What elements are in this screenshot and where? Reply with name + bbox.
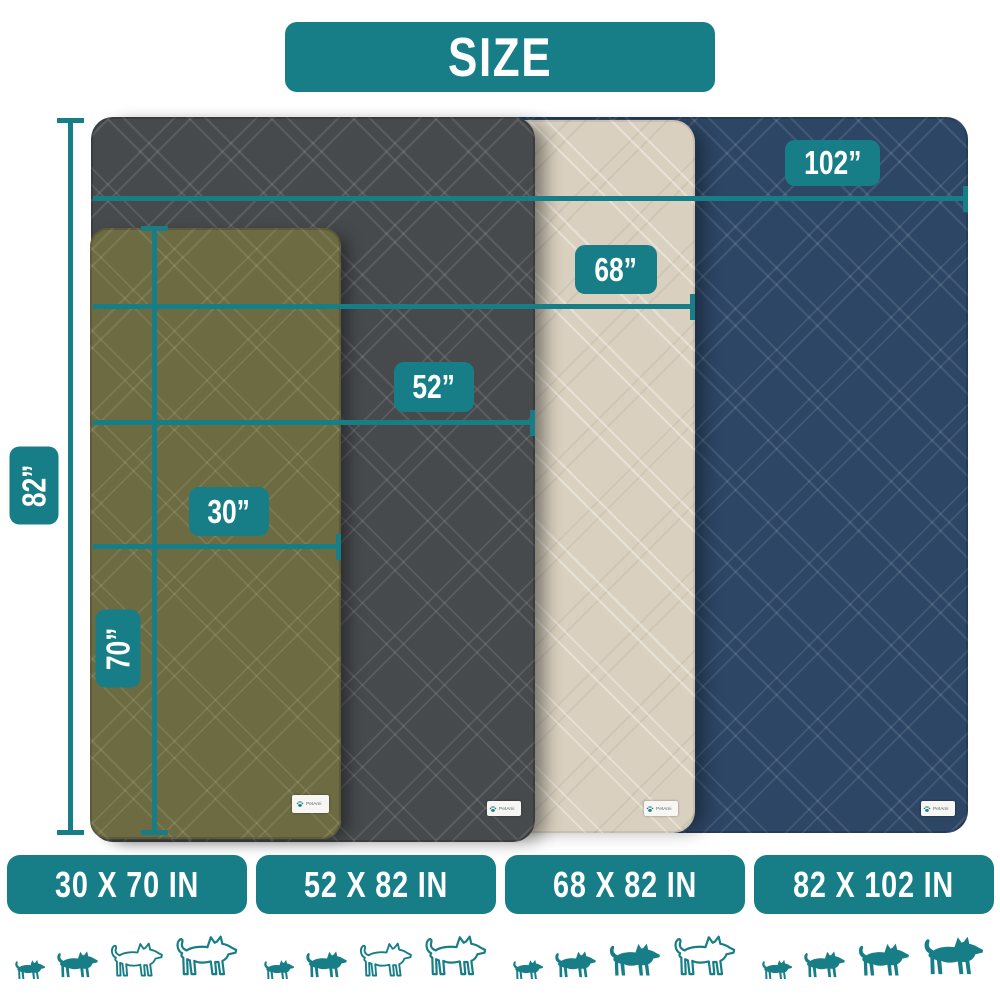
measurement-line-30 — [93, 544, 341, 549]
measurement-badge-82: 82” — [10, 447, 59, 525]
measurement-cap-70-bottom — [141, 830, 168, 835]
dog-size-icons-82x102 — [754, 924, 994, 984]
dog-icon-filled — [303, 946, 351, 984]
dog-icon-filled — [801, 946, 849, 984]
dog-icon-filled — [920, 929, 989, 984]
dog-icon-filled — [760, 956, 795, 984]
size-bar-label: 30 X 70 IN — [55, 864, 199, 906]
size-bar-30x70: 30 X 70 IN — [7, 855, 247, 914]
paw-icon — [646, 805, 654, 813]
measurement-badge-52: 52” — [394, 362, 474, 412]
dog-icon-filled — [552, 946, 600, 984]
measurement-line-68 — [93, 304, 695, 309]
size-bar-82x102: 82 X 102 IN — [754, 855, 994, 914]
measurement-cap-68 — [690, 294, 695, 320]
measurement-label-102: 102” — [804, 144, 861, 182]
measurement-line-82 — [68, 120, 73, 833]
dog-size-icons-52x82 — [256, 924, 496, 984]
dog-size-icons-68x82 — [505, 924, 745, 984]
measurement-line-102 — [93, 196, 968, 201]
measurement-badge-30: 30” — [189, 487, 269, 536]
size-bar-label: 82 X 102 IN — [794, 864, 955, 906]
measurement-line-70 — [152, 228, 157, 833]
measurement-cap-102 — [963, 186, 968, 212]
brand-tag-label: PetAmi — [656, 806, 671, 811]
measurement-badge-70: 70” — [96, 610, 141, 688]
dog-icon-outline — [671, 929, 740, 984]
brand-tag-gray: PetAmi — [487, 801, 521, 816]
size-chart-infographic: SIZE PetAmi PetAmi PetAmi PetAmi 102” 68… — [0, 0, 1000, 1000]
brand-tag-navy: PetAmi — [921, 801, 955, 816]
dog-icon-filled — [855, 937, 914, 984]
measurement-label-82: 82” — [15, 464, 53, 507]
measurement-badge-102: 102” — [785, 140, 880, 186]
brand-tag-olive: PetAmi — [292, 795, 329, 813]
dog-icon-outline — [173, 929, 242, 984]
brand-tag-beige: PetAmi — [644, 801, 678, 816]
dog-icon-outline — [108, 937, 167, 984]
measurement-label-52: 52” — [413, 368, 456, 406]
measurement-line-52 — [93, 420, 535, 425]
dog-icon-filled — [262, 956, 297, 984]
dog-icon-outline — [422, 929, 491, 984]
dog-icon-filled — [54, 946, 102, 984]
paw-icon — [489, 805, 497, 813]
paw-icon — [923, 805, 931, 813]
measurement-label-68: 68” — [595, 251, 638, 289]
size-bar-52x82: 52 X 82 IN — [256, 855, 496, 914]
dog-size-icons-30x70 — [7, 924, 247, 984]
measurement-cap-82-bottom — [57, 830, 84, 835]
paw-icon — [296, 800, 304, 808]
dog-icon-filled — [606, 937, 665, 984]
measurement-label-70: 70” — [99, 627, 137, 670]
size-bar-label: 52 X 82 IN — [304, 864, 448, 906]
dog-icon-filled — [511, 956, 546, 984]
measurement-cap-70-top — [141, 226, 168, 231]
size-header-banner: SIZE — [285, 22, 715, 92]
brand-tag-label: PetAmi — [499, 806, 514, 811]
size-header-title: SIZE — [448, 25, 552, 89]
brand-tag-label: PetAmi — [933, 806, 948, 811]
measurement-cap-82-top — [57, 118, 84, 123]
size-bar-68x82: 68 X 82 IN — [505, 855, 745, 914]
dog-icon-outline — [357, 937, 416, 984]
dog-icon-filled — [13, 956, 48, 984]
measurement-cap-30 — [336, 534, 341, 560]
size-bar-label: 68 X 82 IN — [553, 864, 697, 906]
measurement-badge-68: 68” — [575, 245, 657, 294]
brand-tag-label: PetAmi — [306, 802, 321, 807]
measurement-cap-52 — [530, 410, 535, 436]
measurement-label-30: 30” — [208, 493, 251, 531]
